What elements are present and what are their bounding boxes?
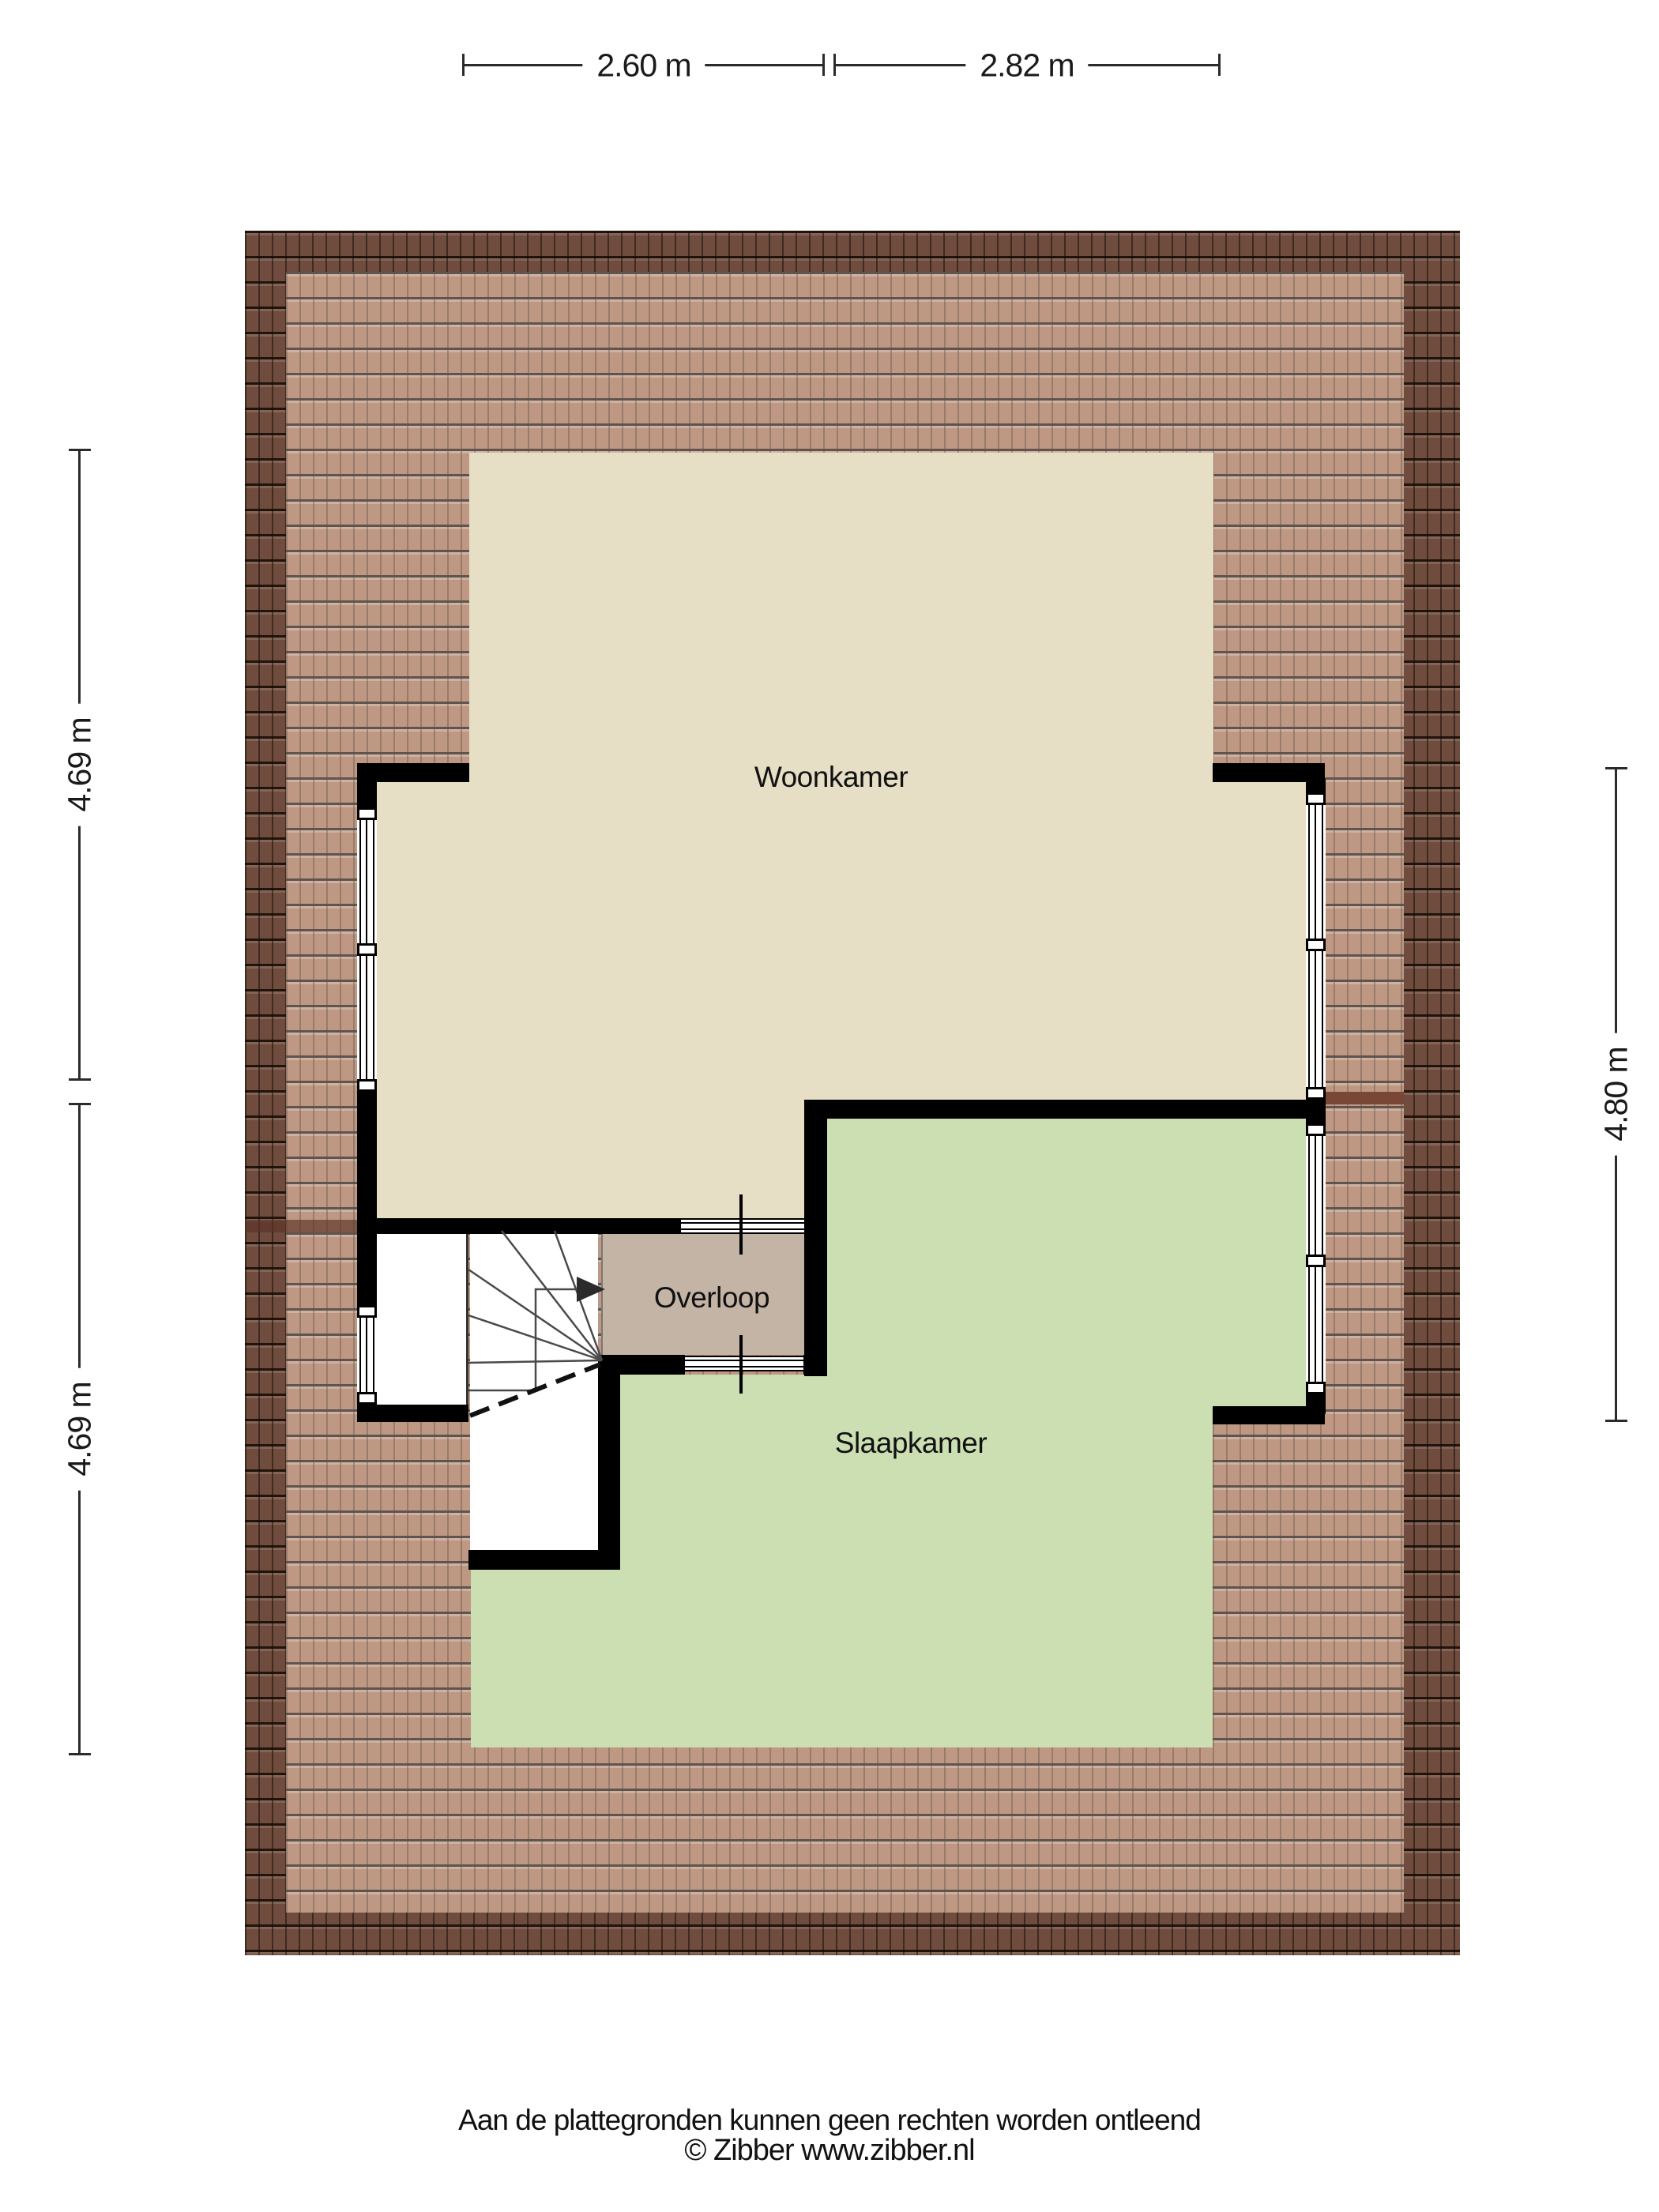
wall-right-bottom-stub [1213, 1406, 1325, 1424]
wall-overloop-right [804, 1100, 827, 1376]
dimension-label-top-2: 2.82 m [965, 47, 1088, 85]
window-divider [1306, 939, 1326, 951]
wall-right-b [1306, 1100, 1326, 1123]
window-divider [1306, 1087, 1326, 1100]
window-divider [1306, 792, 1326, 805]
room-label-woonkamer: Woonkamer [754, 761, 908, 794]
dimension-label-top-1: 2.60 m [582, 47, 705, 85]
wall-left-b [357, 1092, 377, 1305]
dimension-tick [1605, 767, 1627, 769]
woonkamer-floor-upper [469, 453, 1213, 782]
footer-disclaimer: Aan de plattegronden kunnen geen rechten… [0, 2104, 1659, 2137]
woonkamer-floor-main [377, 782, 1306, 1100]
dimension-tick [69, 449, 91, 451]
threshold-overloop-slaapkamer [685, 1356, 803, 1371]
window-divider [1306, 1255, 1326, 1267]
window-divider [1306, 1123, 1326, 1136]
slaapkamer-floor-upper [827, 1119, 1306, 1406]
stairs-up-arrow-icon [577, 1277, 605, 1302]
dimension-tick [69, 1078, 91, 1081]
dimension-tick [1218, 54, 1221, 76]
dimension-label-left-1: 4.69 m [62, 703, 99, 826]
roof-seam-right [1325, 1092, 1404, 1104]
roof-seam-left [245, 1220, 357, 1232]
window-divider [357, 1305, 377, 1318]
window-divider [1306, 1382, 1326, 1394]
room-label-overloop: Overloop [654, 1281, 769, 1315]
slaapkamer-floor-lower-left [471, 1570, 620, 1747]
room-label-slaapkamer: Slaapkamer [835, 1427, 987, 1460]
wall-right-a [1306, 779, 1326, 792]
staircase [442, 1217, 648, 1588]
floorplan-page: Woonkamer Overloop Slaapkamer 2.60 m 2.8… [0, 0, 1659, 2212]
threshold-tick [739, 1335, 743, 1394]
window-divider [357, 807, 377, 820]
dimension-tick [69, 1753, 91, 1755]
dimension-tick [822, 54, 825, 76]
dimension-label-right: 4.80 m [1598, 1033, 1635, 1155]
window-left-lower [357, 1305, 377, 1405]
window-divider [357, 943, 377, 956]
footer-copyright: © Zibber www.zibber.nl [0, 2134, 1659, 2168]
wall-overloop-bottom-right [803, 1355, 827, 1375]
dimension-tick [833, 54, 836, 76]
threshold-tick [739, 1194, 743, 1255]
dimension-tick [1605, 1420, 1627, 1422]
wall-left-a [357, 779, 377, 807]
wall-woonkamer-slaapkamer [806, 1100, 1325, 1119]
threshold-woonkamer-overloop [681, 1218, 804, 1234]
window-divider [357, 1392, 377, 1405]
window-divider [357, 1079, 377, 1092]
dimension-tick [462, 54, 465, 76]
dimension-tick [69, 1103, 91, 1105]
dimension-label-left-2: 4.69 m [62, 1367, 99, 1490]
